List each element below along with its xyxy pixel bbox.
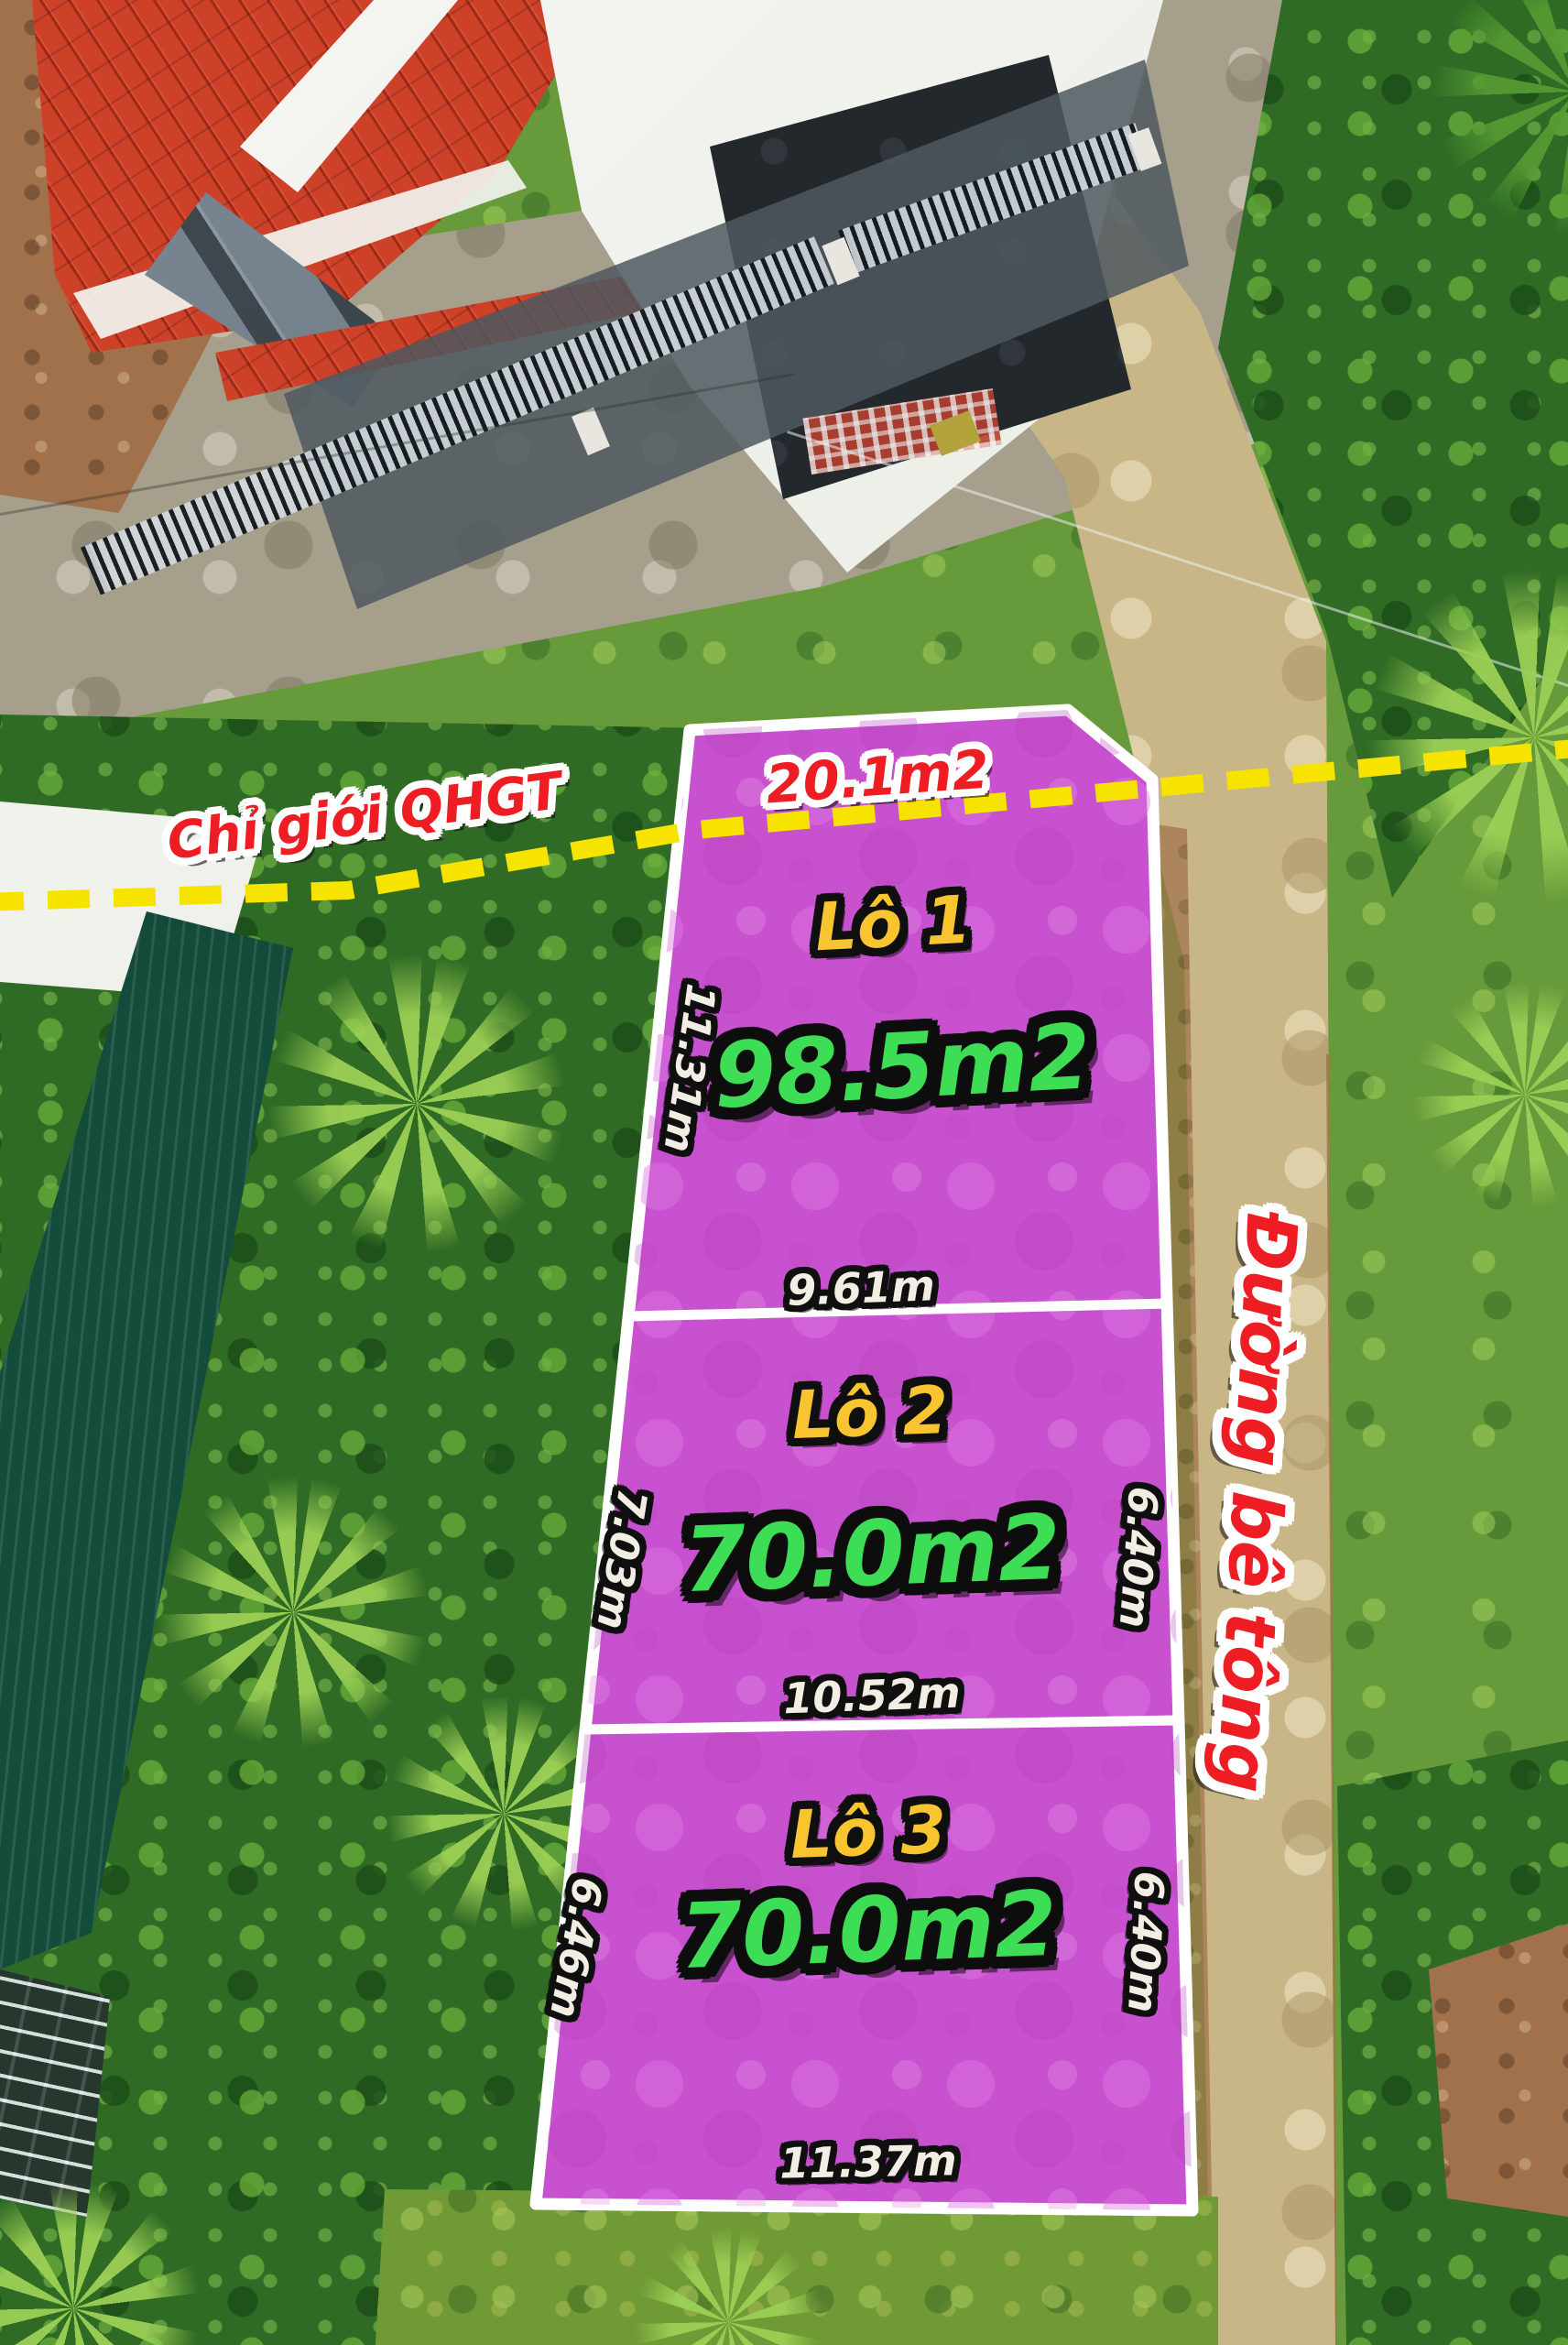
- lot2-area-label: 70.0m2: [681, 1503, 1062, 1606]
- lot1-dimension-bottom: 9.61m: [787, 1264, 936, 1312]
- lot3-dimension-right: 6.40m: [1121, 1871, 1169, 2014]
- lot1-name-label: Lô 1: [813, 887, 973, 961]
- lot3-area-label: 70.0m2: [678, 1880, 1058, 1982]
- lot2-dimension-bottom: 10.52m: [783, 1672, 962, 1720]
- lot1-area-label: 98.5m2: [712, 1012, 1094, 1121]
- land-plot-overlay: [0, 0, 1568, 2345]
- lot3-dimension-bottom: 11.37m: [779, 2139, 957, 2184]
- lot2-dimension-right: 6.40m: [1113, 1485, 1163, 1629]
- lot3-name-label: Lô 3: [789, 1796, 948, 1868]
- clipped-area-label: 20.1m2: [764, 743, 990, 812]
- aerial-photo-canvas: 20.1m2 Chỉ giới QHGT Đường bê tông Lô 1 …: [0, 0, 1568, 2345]
- lot2-name-label: Lô 2: [791, 1377, 950, 1448]
